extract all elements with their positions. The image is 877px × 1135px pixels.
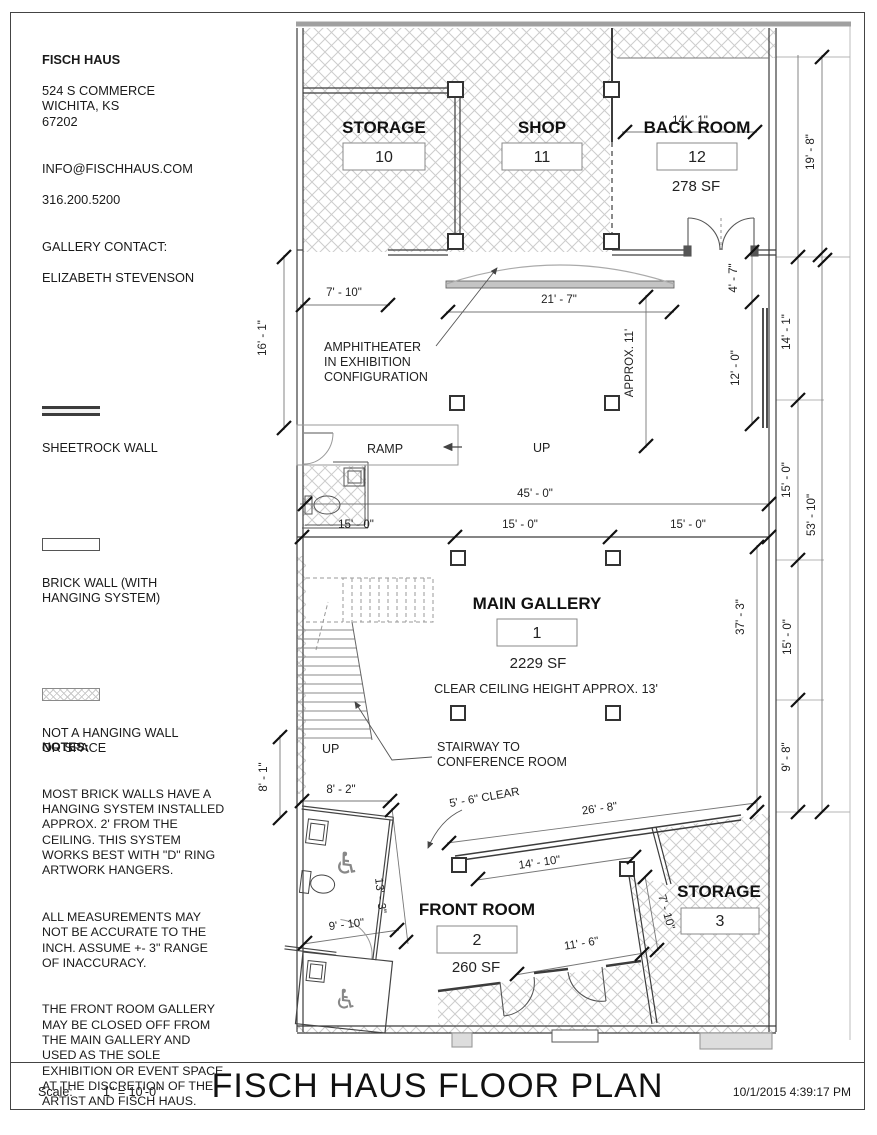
dim-right-15-0-b: 15' - 0" <box>782 619 794 655</box>
stairway <box>298 578 433 760</box>
clear-opening-leader <box>428 810 462 848</box>
amphitheater-note-line3: CONFIGURATION <box>324 370 428 384</box>
dim-amphitheater-width: 21' - 7" <box>541 294 577 306</box>
title-block: Scale: 1" = 10'-0" FISCH HAUS FLOOR PLAN… <box>10 1062 865 1111</box>
dim-back-room-width: 14' - 1" <box>672 115 708 127</box>
dim-right-53-10: 53' - 10" <box>806 494 818 536</box>
dim-14-10: 14' - 10" <box>518 854 561 872</box>
room-area-front-room: 260 SF <box>452 959 500 976</box>
dim-approx-11: APPROX. 11' <box>624 329 636 397</box>
room-number-shop: 11 <box>534 149 551 166</box>
dim-bay-15-0-b: 15' - 0" <box>502 519 538 531</box>
dim-right-19-8: 19' - 8" <box>805 134 817 170</box>
room-number-storage-10: 10 <box>375 149 393 166</box>
ramp-up-label: UP <box>533 441 550 455</box>
room-label-main-gallery: MAIN GALLERY <box>473 594 602 613</box>
floor-plan-drawing: ♿ ♿ STORAGE 10 SHOP 11 BACK ROOM 12 <box>0 0 877 1135</box>
room-area-main-gallery: 2229 SF <box>510 655 567 672</box>
dim-left-8-1: 8' - 1" <box>258 762 270 791</box>
room-number-main-gallery: 1 <box>533 625 542 642</box>
stairway-note-line2: CONFERENCE ROOM <box>437 755 567 769</box>
dim-26-8: 26' - 8" <box>581 801 618 818</box>
ramp-label: RAMP <box>367 442 403 456</box>
stairway-note-line1: STAIRWAY TO <box>437 740 520 754</box>
dim-right-14-1: 14' - 1" <box>781 314 793 350</box>
dim-13-3: 13' - 3" <box>372 877 388 914</box>
room-number-front-room: 2 <box>473 932 482 949</box>
dim-9-10: 9' - 10" <box>328 917 365 933</box>
room-label-storage-3: STORAGE <box>677 882 761 901</box>
ceiling-height-note: CLEAR CEILING HEIGHT APPROX. 13' <box>434 682 658 696</box>
room-area-back-room: 278 SF <box>672 178 720 195</box>
room-label-front-room: FRONT ROOM <box>419 900 535 919</box>
dim-clear-5-6: 5' - 6" CLEAR <box>449 786 521 810</box>
print-datetime: 10/1/2015 4:39:17 PM <box>733 1085 851 1099</box>
dim-opening-west: 7' - 10" <box>326 287 362 299</box>
amphitheater-note-line1: AMPHITHEATER <box>324 340 421 354</box>
plan-annotations: AMPHITHEATER IN EXHIBITION CONFIGURATION… <box>322 340 567 769</box>
stairs-up-label: UP <box>322 742 339 756</box>
room-number-storage-3: 3 <box>716 913 725 930</box>
room-label-storage-10: STORAGE <box>342 118 426 137</box>
dim-right-12-0: 12' - 0" <box>730 350 742 386</box>
wheelchair-icon: ♿ <box>332 846 363 882</box>
dim-bay-15-0-a: 15' - 0" <box>338 519 374 531</box>
amphitheater-note-line2: IN EXHIBITION <box>324 355 411 369</box>
backroom-double-doors <box>684 218 758 256</box>
accessible-restroom-2: ♿ <box>295 952 392 1033</box>
floor-plan-page: FISCH HAUS 524 S COMMERCE WICHITA, KS 67… <box>0 0 877 1135</box>
dim-bay-15-0-c: 15' - 0" <box>670 519 706 531</box>
dim-left-8-2: 8' - 2" <box>326 784 355 796</box>
room-number-back-room: 12 <box>688 149 706 166</box>
dim-11-6: 11' - 6" <box>563 935 599 952</box>
dim-left-16-1: 16' - 1" <box>257 320 269 356</box>
wheelchair-icon: ♿ <box>333 984 360 1016</box>
dim-right-37-3: 37' - 3" <box>735 599 747 635</box>
dim-right-9-8: 9' - 8" <box>781 742 793 771</box>
dim-total-45-0: 45' - 0" <box>517 488 553 500</box>
room-label-shop: SHOP <box>518 118 566 137</box>
dim-right-4-7: 4' - 7" <box>728 263 740 292</box>
dim-right-15-0-a: 15' - 0" <box>781 462 793 498</box>
